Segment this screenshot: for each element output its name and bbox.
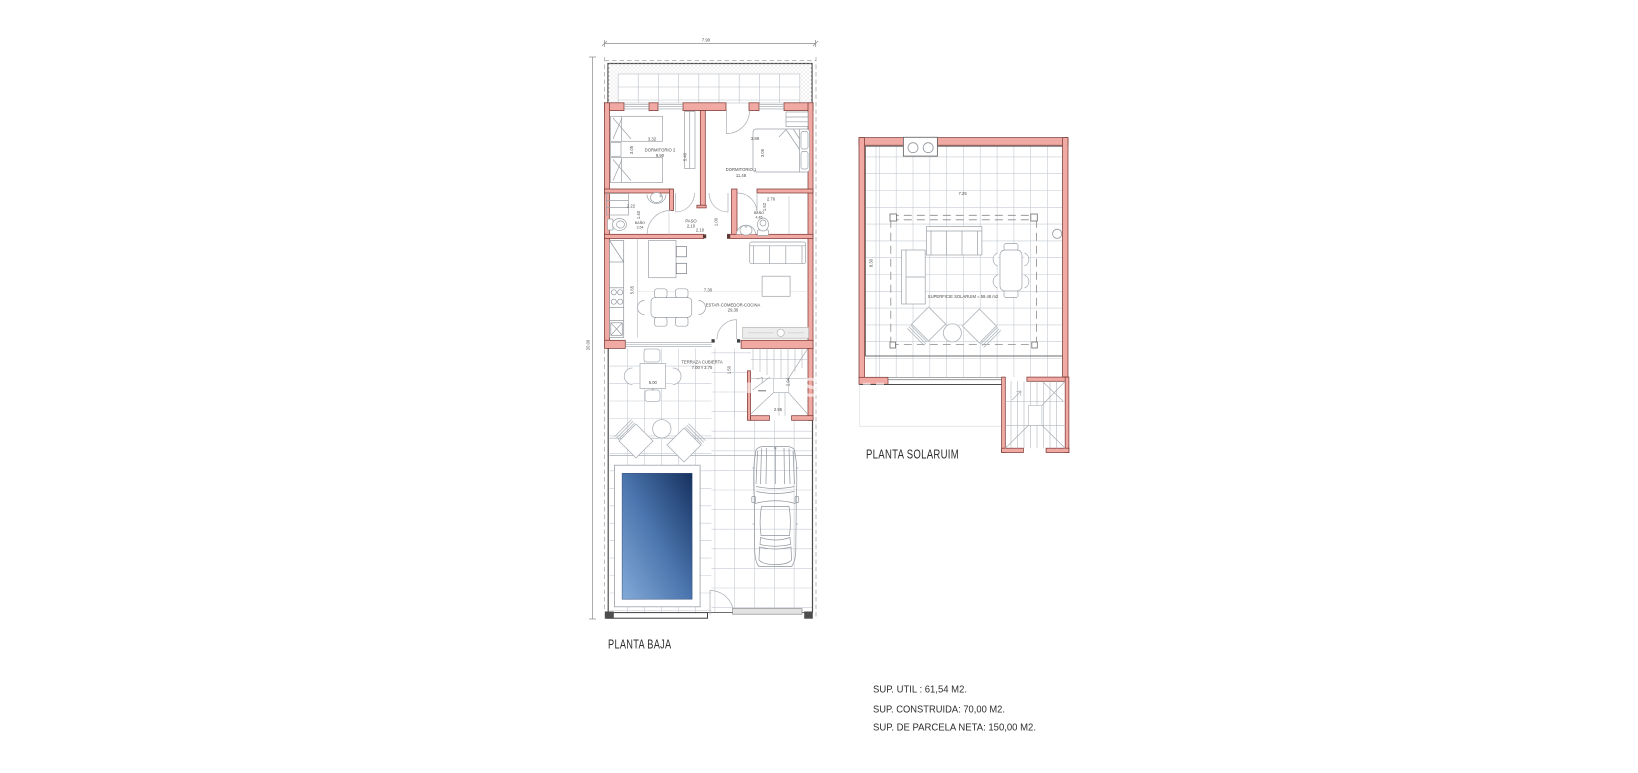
svg-text:2.76: 2.76 [767, 197, 776, 202]
svg-text:7.90: 7.90 [702, 38, 711, 43]
svg-text:7.30: 7.30 [704, 288, 713, 293]
svg-text:7.00 ◊ 3.75: 7.00 ◊ 3.75 [692, 365, 713, 370]
svg-text:SUP. CONSTRUIDA: 70,00 M2.: SUP. CONSTRUIDA: 70,00 M2. [873, 703, 1005, 715]
svg-text:3,54: 3,54 [637, 226, 644, 230]
svg-text:1.40: 1.40 [636, 210, 641, 219]
svg-text:SUP. UTIL : 61,54 M2.: SUP. UTIL : 61,54 M2. [873, 684, 967, 696]
svg-text:4,45: 4,45 [756, 216, 763, 220]
svg-text:DORMITORIO 1: DORMITORIO 1 [726, 167, 757, 172]
svg-text:3.32: 3.32 [648, 137, 657, 142]
svg-text:2.22: 2.22 [627, 204, 636, 209]
svg-text:SUP. DE PARCELA NETA: 150,00 M: SUP. DE PARCELA NETA: 150,00 M2. [873, 722, 1036, 734]
svg-text:9,90: 9,90 [656, 153, 665, 158]
svg-text:8.30: 8.30 [869, 258, 874, 267]
svg-text:2.95: 2.95 [774, 407, 783, 412]
svg-text:DORMITORIO 2: DORMITORIO 2 [645, 148, 676, 153]
svg-text:3.05: 3.05 [629, 145, 634, 154]
svg-text:2.10: 2.10 [696, 228, 705, 233]
svg-text:20.00: 20.00 [586, 339, 591, 350]
svg-text:29,30: 29,30 [728, 308, 739, 313]
svg-text:PLANTA BAJA: PLANTA BAJA [608, 638, 672, 652]
svg-text:TERRAZA CUBIERTA: TERRAZA CUBIERTA [681, 359, 722, 364]
svg-text:3.89: 3.89 [751, 136, 760, 141]
svg-text:2.94: 2.94 [786, 377, 791, 386]
svg-text:1.50: 1.50 [727, 365, 732, 374]
svg-text:1.52: 1.52 [762, 202, 767, 211]
svg-text:7.25: 7.25 [959, 191, 968, 196]
svg-text:2,10: 2,10 [687, 224, 696, 229]
svg-text:S: S [802, 373, 820, 403]
svg-text:SUPERFICIE SOLARUIM = 59.48 m2: SUPERFICIE SOLARUIM = 59.48 m2 [928, 294, 999, 299]
svg-text:5.65: 5.65 [630, 285, 635, 294]
svg-text:1.00: 1.00 [713, 217, 718, 226]
svg-text:BAÑO: BAÑO [635, 220, 645, 225]
svg-text:3.05: 3.05 [760, 148, 765, 157]
svg-text:PLANTA SOLARUIM: PLANTA SOLARUIM [866, 448, 959, 462]
svg-text:5.00: 5.00 [649, 380, 658, 385]
svg-text:11,48: 11,48 [736, 173, 747, 178]
svg-text:5.40: 5.40 [683, 152, 688, 161]
